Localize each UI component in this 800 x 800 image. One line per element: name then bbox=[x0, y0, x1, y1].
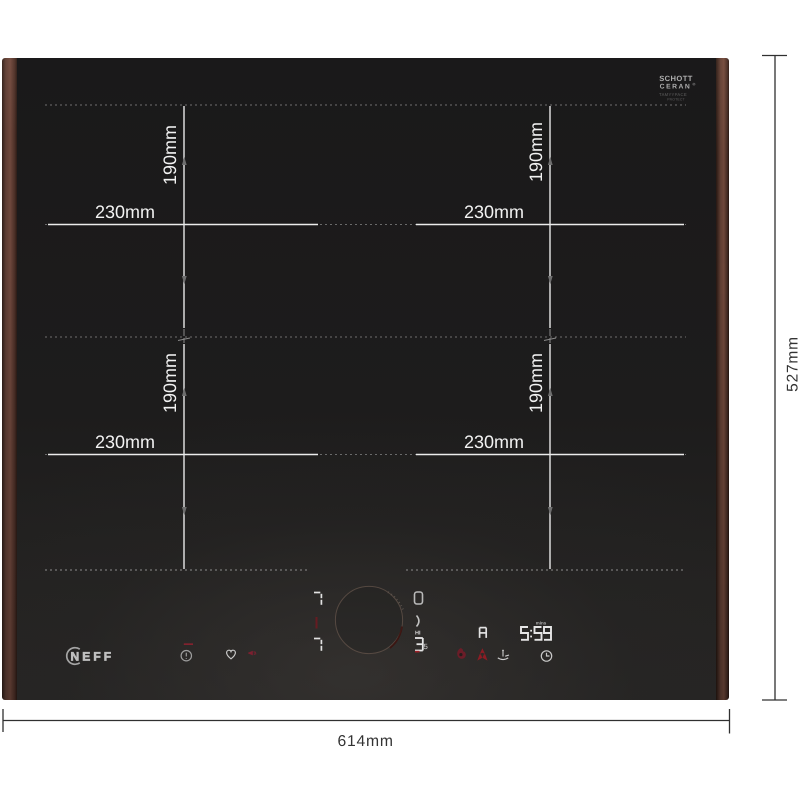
svg-text:190mm: 190mm bbox=[526, 353, 546, 413]
svg-text:614mm: 614mm bbox=[337, 733, 393, 750]
svg-text:230mm: 230mm bbox=[95, 432, 155, 452]
svg-text:190mm: 190mm bbox=[526, 122, 546, 182]
svg-text:TAMYYPACE: TAMYYPACE bbox=[659, 92, 687, 97]
svg-text:PROTECT: PROTECT bbox=[667, 98, 685, 102]
svg-text:CERAN: CERAN bbox=[660, 84, 692, 91]
svg-text:HI: HI bbox=[415, 631, 421, 637]
svg-text:527mm: 527mm bbox=[785, 336, 800, 392]
svg-text:NEFF: NEFF bbox=[71, 649, 115, 663]
svg-text:SCHOTT: SCHOTT bbox=[659, 74, 693, 83]
svg-text:5: 5 bbox=[424, 642, 428, 651]
svg-text:230mm: 230mm bbox=[95, 202, 155, 222]
svg-text:mins: mins bbox=[536, 621, 547, 626]
svg-text:®: ® bbox=[693, 83, 696, 87]
svg-text:190mm: 190mm bbox=[160, 353, 180, 413]
svg-text:190mm: 190mm bbox=[160, 125, 180, 185]
svg-text:230mm: 230mm bbox=[464, 432, 524, 452]
svg-text:230mm: 230mm bbox=[464, 202, 524, 222]
